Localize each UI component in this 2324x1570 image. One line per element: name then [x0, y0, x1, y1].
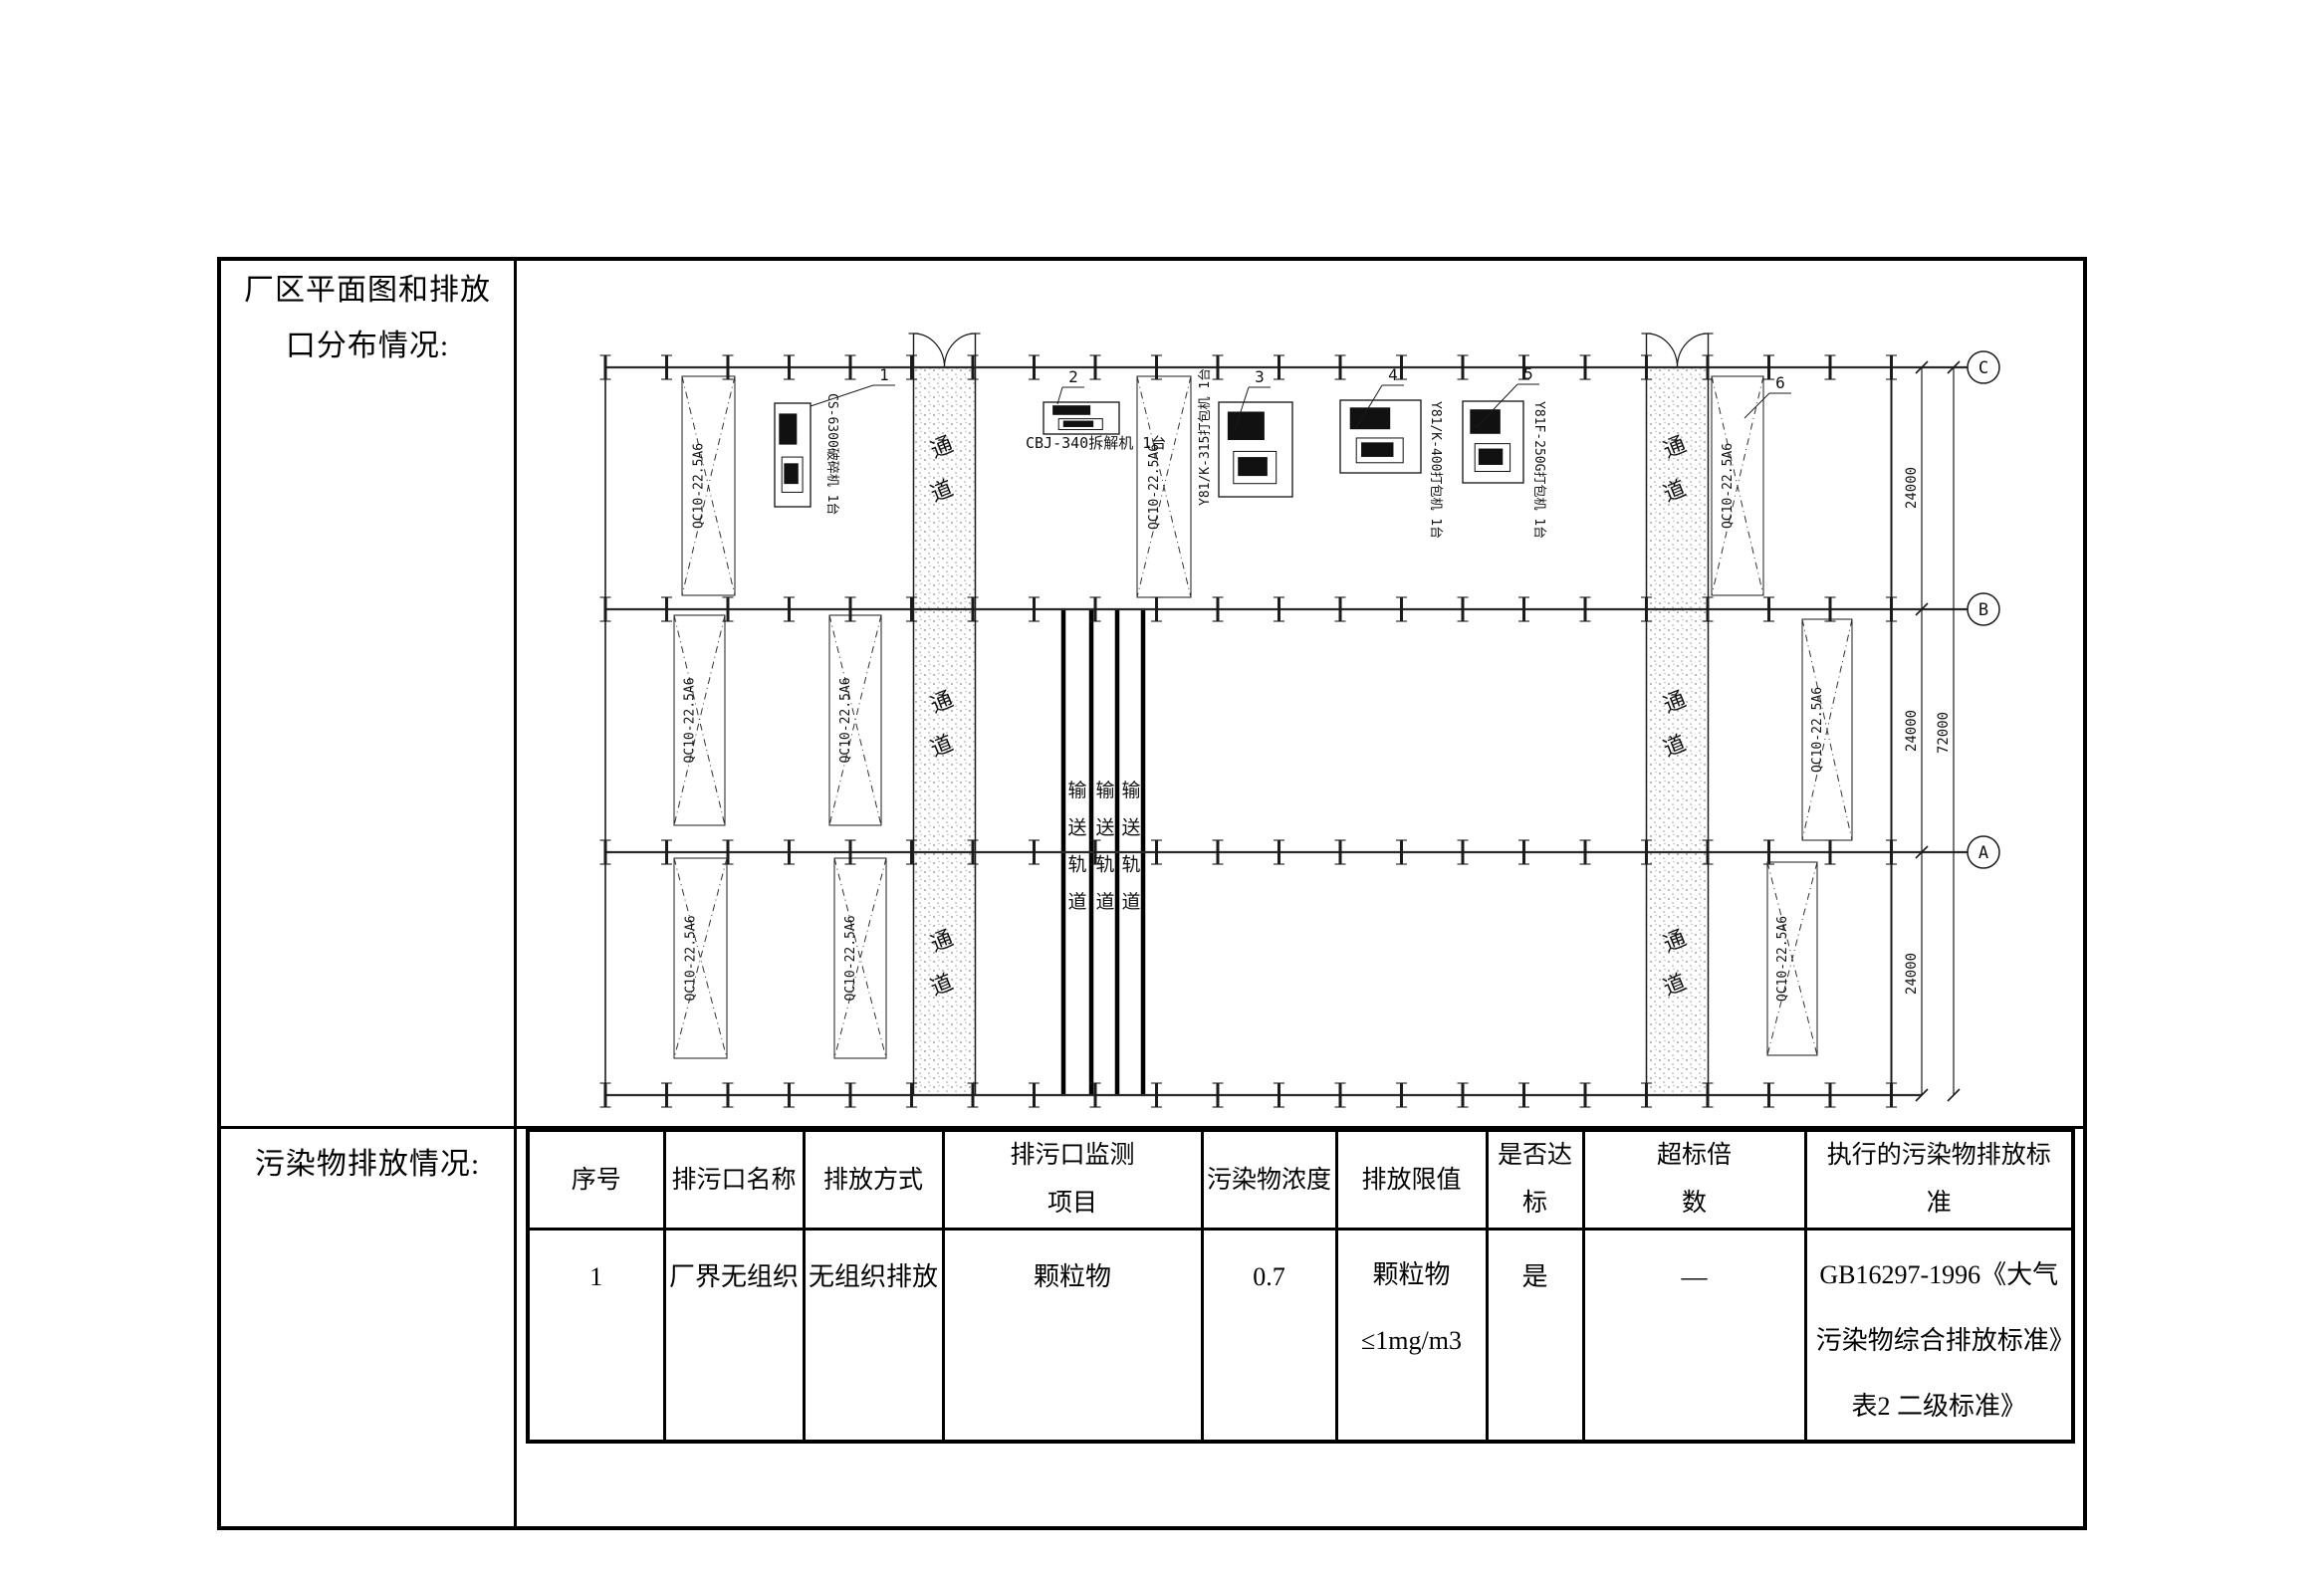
track-label: 输	[1121, 780, 1140, 801]
machine-label: Y81/K-400打包机 1台	[1428, 401, 1443, 539]
axis-circle-label: C	[1978, 358, 1988, 378]
cell-seq: 1	[528, 1230, 664, 1443]
machine-label: CS-6300破碎机 1台	[824, 393, 839, 515]
crane-label: QC10-22.5A6	[838, 677, 853, 763]
track-label: 送	[1095, 816, 1114, 838]
factory-plan-drawing: 通道通道通道通道通道通道输送轨道输送轨道输送轨道CBA2400024000240…	[516, 260, 2087, 1128]
header-emission-mode: 排放方式	[804, 1130, 943, 1230]
header-monitor-item: 排污口监测项目	[943, 1130, 1202, 1230]
door-leaf-icon	[914, 334, 945, 367]
cell-standard: GB16297-1996《大气污染物综合排放标准》表2 二级标准》	[1805, 1230, 2073, 1443]
plan-section-label: 厂区平面图和排放 口分布情况:	[223, 263, 512, 374]
track-label: 送	[1121, 816, 1140, 838]
machine-label: CBJ-340拆解机 1台	[1026, 434, 1166, 452]
cell-compliant: 是	[1487, 1230, 1583, 1443]
plan-section-label-line1: 厂区平面图和排放	[223, 263, 512, 319]
emission-table: 序号 排污口名称 排放方式 排污口监测项目 污染物浓度 排放限值 是否达标 超标…	[526, 1128, 2075, 1444]
header-seq: 序号	[528, 1130, 664, 1230]
cell-limit: 颗粒物≤1mg/m3	[1336, 1230, 1487, 1443]
header-outlet-name: 排污口名称	[664, 1130, 804, 1230]
crane-label: QC10-22.5A6	[1775, 916, 1790, 1002]
door-leaf-icon	[945, 334, 976, 367]
crane-label: QC10-22.5A6	[1721, 443, 1736, 529]
track-label: 道	[1121, 891, 1140, 913]
crane-label: QC10-22.5A6	[1810, 687, 1825, 773]
door-leaf-icon	[1647, 334, 1678, 367]
cell-concentration: 0.7	[1202, 1230, 1336, 1443]
document-page: { "sections": { "plan": { "line1": "厂区平面…	[0, 0, 2324, 1570]
callout-number: 3	[1255, 367, 1265, 386]
header-compliant: 是否达标	[1487, 1130, 1583, 1230]
cell-emission-mode: 无组织排放	[804, 1230, 943, 1443]
plan-section-label-line2: 口分布情况:	[223, 319, 512, 374]
crane-label: QC10-22.5A6	[683, 677, 698, 763]
cell-exceed-times: —	[1583, 1230, 1805, 1443]
track-label: 轨	[1067, 854, 1086, 876]
axis-circle-label: A	[1978, 843, 1988, 863]
door-leaf-icon	[1678, 334, 1709, 367]
crane-label: QC10-22.5A6	[692, 443, 707, 529]
crane-label: QC10-22.5A6	[684, 915, 699, 1001]
header-limit: 排放限值	[1336, 1130, 1487, 1230]
callout-number: 6	[1775, 373, 1785, 392]
track-label: 送	[1067, 816, 1086, 838]
crane-label: QC10-22.5A6	[843, 915, 858, 1001]
header-concentration: 污染物浓度	[1202, 1130, 1336, 1230]
callout-number: 2	[1068, 367, 1078, 386]
machine-label: Y81F-250G打包机 1台	[1531, 401, 1546, 539]
dimension-label: 24000	[1904, 467, 1920, 509]
track-label: 输	[1067, 780, 1086, 801]
dimension-label: 24000	[1904, 710, 1920, 752]
header-standard: 执行的污染物排放标准	[1805, 1130, 2073, 1230]
emission-table-data-row: 1 厂界无组织 无组织排放 颗粒物 0.7 颗粒物≤1mg/m3 是 — GB1…	[528, 1230, 2073, 1443]
track-label: 轨	[1121, 854, 1140, 876]
callout-number: 5	[1523, 364, 1533, 383]
cell-outlet-name: 厂界无组织	[664, 1230, 804, 1443]
dimension-label: 24000	[1904, 953, 1920, 995]
emission-section-label: 污染物排放情况:	[223, 1137, 512, 1193]
cell-monitor-item: 颗粒物	[943, 1230, 1202, 1443]
track-label: 轨	[1095, 854, 1114, 876]
crane-label: QC10-22.5A6	[1147, 444, 1162, 530]
axis-circle-label: B	[1978, 600, 1988, 620]
machine-label: Y81/K-315打包机 1台	[1198, 368, 1213, 506]
dimension-label: 72000	[1936, 712, 1952, 754]
track-label: 输	[1095, 780, 1114, 801]
emission-table-header-row: 序号 排污口名称 排放方式 排污口监测项目 污染物浓度 排放限值 是否达标 超标…	[528, 1130, 2073, 1230]
track-label: 道	[1067, 891, 1086, 913]
callout-number: 1	[879, 365, 889, 384]
callout-number: 4	[1388, 365, 1398, 384]
track-label: 道	[1095, 891, 1114, 913]
header-exceed-times: 超标倍数	[1583, 1130, 1805, 1230]
